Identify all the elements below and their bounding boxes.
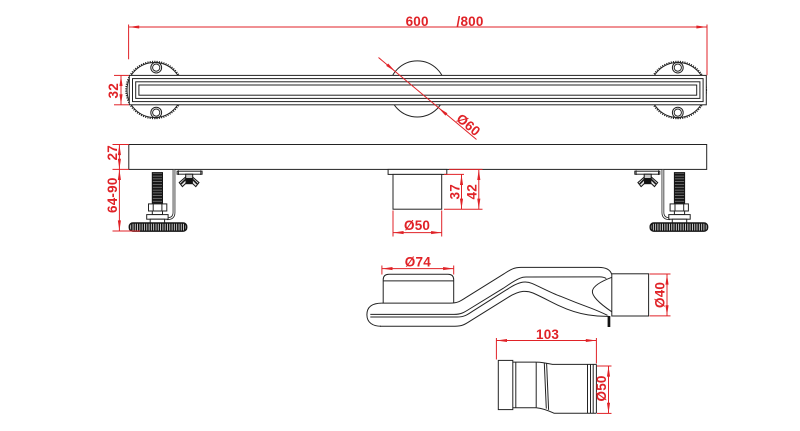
svg-text:/800: /800 [457, 14, 484, 29]
svg-text:Ø50: Ø50 [404, 218, 430, 233]
svg-text:600: 600 [406, 14, 429, 29]
svg-text:42: 42 [465, 184, 480, 199]
svg-text:Ø74: Ø74 [405, 254, 431, 269]
svg-text:37: 37 [447, 184, 462, 199]
svg-text:103: 103 [536, 327, 559, 342]
svg-text:64-90: 64-90 [105, 177, 120, 213]
svg-text:Ø40: Ø40 [653, 282, 668, 308]
svg-text:32: 32 [106, 83, 121, 98]
svg-text:Ø50: Ø50 [594, 375, 609, 401]
svg-text:27: 27 [105, 145, 120, 160]
